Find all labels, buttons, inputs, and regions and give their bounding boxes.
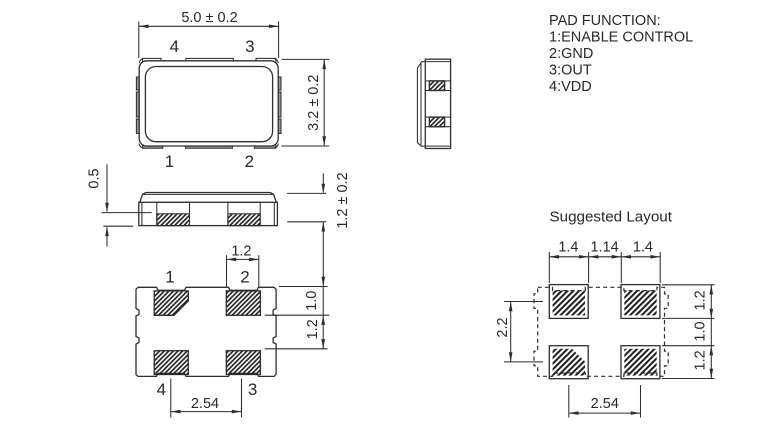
svg-text:5.0 ± 0.2: 5.0 ± 0.2: [181, 10, 237, 26]
svg-text:1.14: 1.14: [590, 239, 618, 255]
svg-text:2.2: 2.2: [495, 317, 511, 337]
svg-text:1: 1: [165, 268, 174, 287]
svg-text:1.2: 1.2: [693, 350, 709, 370]
svg-text:2.54: 2.54: [191, 396, 219, 412]
svg-text:3:OUT: 3:OUT: [549, 62, 592, 78]
svg-text:1.2: 1.2: [231, 243, 251, 259]
svg-text:1:ENABLE CONTROL: 1:ENABLE CONTROL: [549, 30, 693, 46]
svg-text:1.2: 1.2: [693, 290, 709, 310]
svg-text:3.2 ± 0.2: 3.2 ± 0.2: [306, 75, 322, 131]
svg-text:2: 2: [245, 152, 254, 171]
svg-text:1.0: 1.0: [304, 291, 320, 311]
svg-text:2: 2: [240, 268, 249, 287]
svg-text:3: 3: [245, 37, 254, 56]
svg-text:4:VDD: 4:VDD: [549, 79, 592, 95]
svg-text:0.5: 0.5: [87, 168, 103, 188]
svg-text:2:GND: 2:GND: [549, 46, 593, 62]
svg-text:2.54: 2.54: [591, 396, 619, 412]
svg-text:1: 1: [165, 152, 174, 171]
svg-text:1.2 ± 0.2: 1.2 ± 0.2: [335, 172, 351, 228]
svg-text:3: 3: [248, 380, 257, 399]
svg-text:1.4: 1.4: [558, 239, 578, 255]
svg-text:4: 4: [170, 37, 179, 56]
svg-text:Suggested Layout: Suggested Layout: [550, 208, 673, 225]
svg-text:1.0: 1.0: [693, 321, 709, 341]
svg-text:PAD FUNCTION:: PAD FUNCTION:: [549, 13, 661, 29]
svg-text:1.2: 1.2: [305, 319, 321, 339]
svg-text:1.4: 1.4: [633, 239, 653, 255]
svg-text:4: 4: [157, 380, 166, 399]
